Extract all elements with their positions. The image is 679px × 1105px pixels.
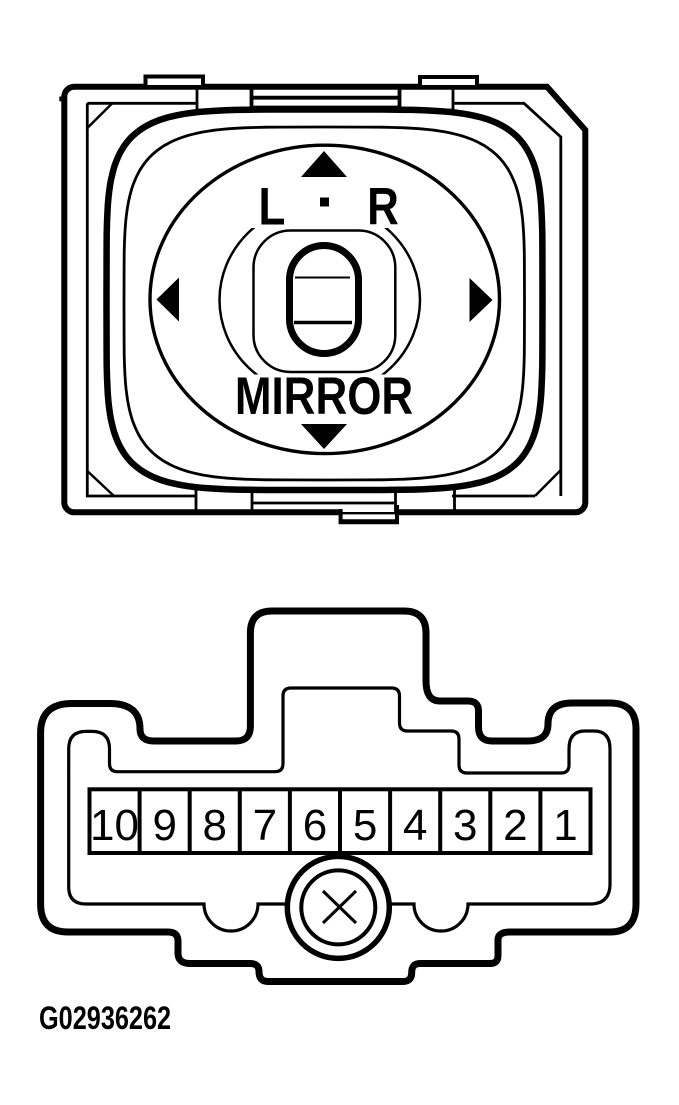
svg-text:4: 4 bbox=[403, 801, 427, 850]
svg-text:5: 5 bbox=[353, 801, 377, 850]
svg-text:3: 3 bbox=[453, 801, 477, 850]
svg-text:MIRROR: MIRROR bbox=[235, 367, 413, 426]
svg-text:R: R bbox=[367, 178, 399, 237]
svg-text:7: 7 bbox=[253, 801, 277, 850]
svg-text:9: 9 bbox=[152, 801, 176, 850]
svg-text:G02936262: G02936262 bbox=[39, 1001, 171, 1037]
svg-text:2: 2 bbox=[503, 801, 527, 850]
svg-text:10: 10 bbox=[90, 801, 139, 850]
svg-text:6: 6 bbox=[303, 801, 327, 850]
svg-text:L: L bbox=[259, 178, 286, 237]
svg-text:1: 1 bbox=[553, 801, 577, 850]
svg-text:8: 8 bbox=[203, 801, 227, 850]
